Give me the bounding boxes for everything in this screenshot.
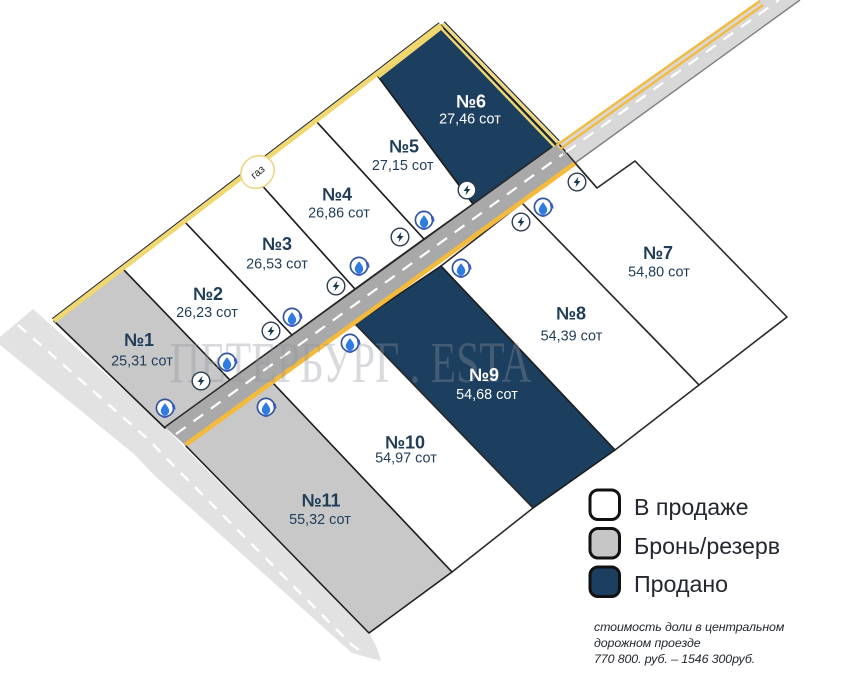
- svg-text:27,46 сот: 27,46 сот: [439, 112, 501, 128]
- svg-text:№8: №8: [556, 304, 586, 324]
- svg-text:№4: №4: [322, 185, 352, 205]
- svg-text:№9: №9: [469, 365, 499, 385]
- svg-text:№3: №3: [262, 234, 292, 254]
- svg-text:26,86 сот: 26,86 сот: [308, 206, 370, 222]
- svg-text:№11: №11: [301, 491, 340, 511]
- svg-text:26,53 сот: 26,53 сот: [246, 256, 308, 272]
- svg-text:27,15 сот: 27,15 сот: [372, 158, 434, 174]
- svg-text:№5: №5: [389, 137, 419, 157]
- svg-text:№7: №7: [643, 243, 673, 263]
- svg-text:54,97 сот: 54,97 сот: [375, 451, 437, 467]
- svg-text:Продано: Продано: [634, 571, 728, 597]
- svg-text:дорожном проезде: дорожном проезде: [594, 636, 701, 650]
- svg-text:770 800. руб. – 1546 300руб.: 770 800. руб. – 1546 300руб.: [594, 652, 755, 666]
- svg-text:В продаже: В продаже: [634, 494, 749, 520]
- svg-text:№10: №10: [385, 432, 425, 452]
- svg-text:54,68 сот: 54,68 сот: [456, 387, 518, 403]
- svg-text:54,39 сот: 54,39 сот: [541, 328, 603, 344]
- svg-text:25,31 сот: 25,31 сот: [111, 354, 173, 370]
- svg-text:55,32 сот: 55,32 сот: [289, 512, 351, 528]
- svg-text:№6: №6: [456, 92, 486, 112]
- svg-text:№2: №2: [193, 284, 223, 304]
- svg-text:54,80 сот: 54,80 сот: [628, 265, 690, 281]
- svg-text:Бронь/резерв: Бронь/резерв: [634, 533, 780, 559]
- svg-text:№1: №1: [124, 330, 154, 350]
- svg-text:стоимость доли в центральном: стоимость доли в центральном: [594, 620, 785, 634]
- svg-text:26,23 сот: 26,23 сот: [176, 305, 238, 321]
